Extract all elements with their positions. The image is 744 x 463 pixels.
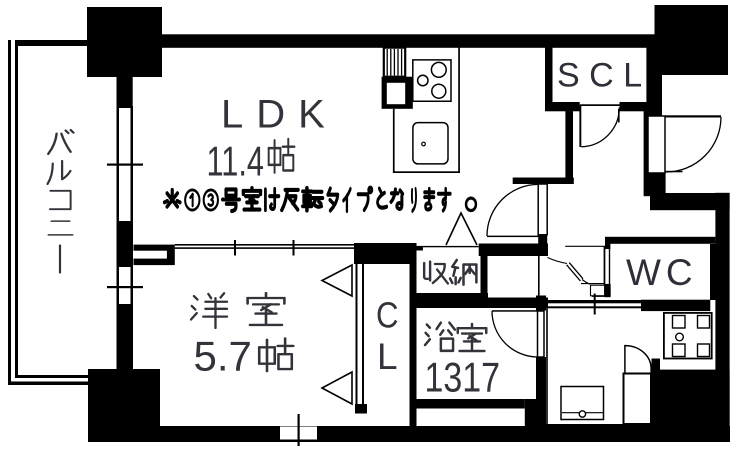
- svg-text:C: C: [376, 295, 399, 336]
- svg-text:SCL: SCL: [557, 57, 652, 95]
- svg-text:L: L: [377, 336, 398, 377]
- svg-text:11.4: 11.4: [207, 138, 265, 185]
- svg-text:LDK: LDK: [221, 93, 338, 137]
- svg-text:1317: 1317: [425, 354, 501, 401]
- svg-text:WC: WC: [626, 252, 698, 293]
- svg-text:5.7: 5.7: [194, 333, 252, 380]
